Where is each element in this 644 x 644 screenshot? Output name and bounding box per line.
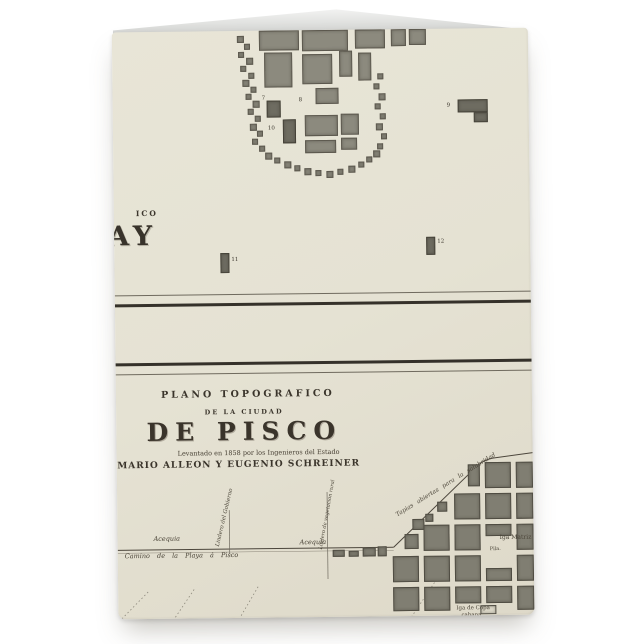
map-annotation: Lindero del Gobierno	[215, 488, 235, 547]
map-annotation: Acequia	[154, 535, 181, 543]
map-annotation: Tapias abiertas para la salubridad	[395, 452, 497, 519]
map-annotation: Camino de la Playa á Pisco	[125, 551, 239, 560]
map-annotation: Lindero de vegetacion rural	[318, 479, 337, 550]
card-front-panel: 789101112 ICO AY	[112, 28, 535, 620]
map-annotation: Iga de Copa	[456, 605, 490, 611]
pisco-labels-layer: AcequiaLindero del GobiernoAcequiaLinder…	[112, 28, 535, 620]
greeting-card: 789101112 ICO AY	[112, 6, 535, 620]
map-annotation: Iga Matriz	[500, 534, 532, 541]
map-annotation: cabana	[461, 612, 481, 618]
product-stage: 789101112 ICO AY	[0, 0, 644, 644]
map-annotation: Pila.	[490, 546, 501, 552]
